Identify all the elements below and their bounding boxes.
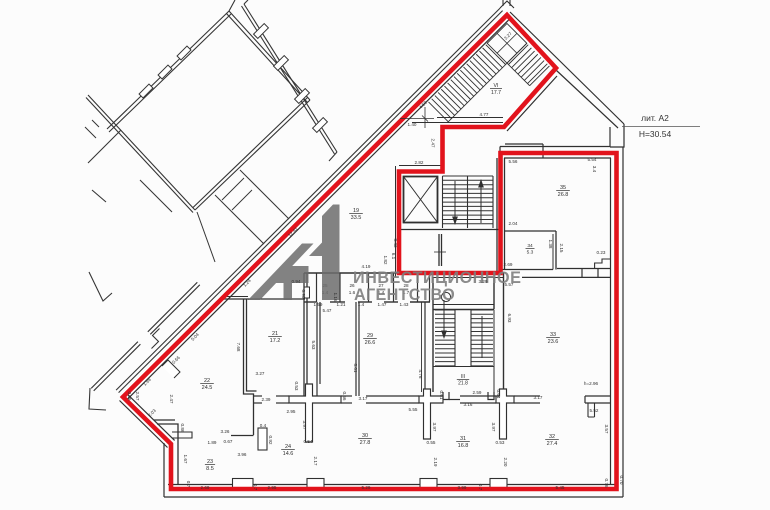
svg-text:2.39: 2.39 [262, 397, 271, 402]
svg-text:5.63: 5.63 [311, 341, 316, 350]
svg-text:33.5: 33.5 [351, 215, 362, 221]
svg-text:2.19: 2.19 [433, 458, 438, 467]
svg-text:4.19: 4.19 [362, 264, 371, 269]
svg-text:1.4: 1.4 [358, 302, 365, 307]
svg-text:26.6: 26.6 [365, 340, 376, 346]
svg-text:17.2: 17.2 [270, 338, 281, 344]
svg-text:1.21: 1.21 [337, 302, 346, 307]
svg-text:0.86: 0.86 [180, 424, 185, 433]
svg-text:29: 29 [367, 333, 373, 339]
svg-text:1.67: 1.67 [183, 455, 188, 464]
svg-text:0.76: 0.76 [604, 479, 609, 488]
svg-text:33: 33 [550, 332, 556, 338]
svg-text:VI: VI [494, 83, 499, 89]
svg-text:31: 31 [460, 436, 466, 442]
svg-text:лит. А2: лит. А2 [641, 113, 669, 123]
svg-text:1.43: 1.43 [400, 302, 409, 307]
svg-text:23.6: 23.6 [548, 339, 559, 345]
svg-text:0.64: 0.64 [496, 390, 501, 399]
svg-text:1.16: 1.16 [333, 293, 338, 302]
svg-text:2.47: 2.47 [169, 395, 174, 404]
svg-text:7.68: 7.68 [236, 343, 241, 352]
svg-text:0.53: 0.53 [294, 382, 299, 391]
svg-text:24: 24 [285, 444, 291, 450]
svg-text:5.45: 5.45 [556, 485, 565, 490]
svg-text:Н=30.54: Н=30.54 [639, 129, 672, 139]
svg-text:1.38: 1.38 [548, 240, 553, 249]
svg-text:2.82: 2.82 [415, 160, 424, 165]
svg-text:0.67: 0.67 [224, 439, 233, 444]
svg-text:22: 22 [204, 378, 210, 384]
svg-text:1.59: 1.59 [314, 302, 323, 307]
svg-text:5.55: 5.55 [409, 407, 418, 412]
svg-text:2.69: 2.69 [201, 485, 210, 490]
svg-text:21.8: 21.8 [458, 381, 468, 387]
svg-text:0.54: 0.54 [304, 439, 313, 444]
svg-text:5.3: 5.3 [527, 249, 534, 255]
svg-text:3.97: 3.97 [432, 423, 437, 432]
svg-text:1.89: 1.89 [208, 440, 217, 445]
svg-text:1.47: 1.47 [378, 302, 387, 307]
svg-text:27.4: 27.4 [547, 441, 558, 447]
svg-text:14.6: 14.6 [283, 451, 294, 457]
svg-text:3.57: 3.57 [604, 425, 609, 434]
svg-text:0.7: 0.7 [186, 481, 191, 488]
svg-text:0.65: 0.65 [127, 392, 132, 401]
svg-text:2.59: 2.59 [473, 390, 482, 395]
svg-text:23: 23 [207, 459, 213, 465]
svg-text:5.52: 5.52 [590, 408, 599, 413]
svg-text:21: 21 [272, 331, 278, 337]
svg-text:34: 34 [527, 243, 533, 249]
svg-text:3.16: 3.16 [464, 402, 473, 407]
svg-text:19: 19 [353, 208, 359, 214]
svg-text:32: 32 [549, 434, 555, 440]
svg-text:1.82: 1.82 [383, 256, 388, 265]
svg-text:4.77: 4.77 [480, 112, 489, 117]
svg-text:0.53: 0.53 [496, 440, 505, 445]
svg-text:0.61: 0.61 [439, 391, 444, 400]
svg-text:0.90: 0.90 [301, 290, 306, 299]
svg-text:8.5: 8.5 [206, 466, 214, 472]
svg-text:3.97: 3.97 [491, 423, 496, 432]
svg-text:3.29: 3.29 [479, 279, 488, 284]
svg-text:27.8: 27.8 [360, 440, 371, 446]
svg-text:3.96: 3.96 [238, 452, 247, 457]
svg-text:6.1: 6.1 [391, 253, 396, 260]
svg-text:5.29: 5.29 [362, 485, 371, 490]
svg-text:2.69: 2.69 [504, 262, 513, 267]
svg-text:5.47: 5.47 [323, 308, 332, 313]
svg-text:III: III [461, 374, 465, 380]
svg-text:6.93: 6.93 [507, 314, 512, 323]
svg-text:8.01: 8.01 [353, 364, 358, 373]
svg-text:26.8: 26.8 [558, 192, 569, 198]
svg-text:2.04: 2.04 [509, 221, 518, 226]
svg-text:0.70: 0.70 [619, 476, 624, 485]
svg-text:0.66: 0.66 [342, 392, 347, 401]
svg-text:30: 30 [362, 433, 368, 439]
svg-text:3.97: 3.97 [302, 421, 307, 430]
svg-text:2.95: 2.95 [268, 485, 277, 490]
svg-text:2.17: 2.17 [313, 457, 318, 466]
svg-text:3.26: 3.26 [221, 429, 230, 434]
svg-text:0.7: 0.7 [253, 484, 258, 491]
svg-text:0.94: 0.94 [292, 279, 301, 284]
svg-text:35: 35 [560, 185, 566, 191]
svg-text:8.43: 8.43 [393, 239, 398, 248]
svg-text:16.8: 16.8 [458, 443, 469, 449]
svg-text:2.15: 2.15 [559, 244, 564, 253]
svg-text:24.5: 24.5 [202, 385, 213, 391]
svg-text:3.27: 3.27 [256, 371, 265, 376]
svg-text:0.7: 0.7 [478, 484, 483, 491]
svg-text:3.17: 3.17 [359, 396, 368, 401]
svg-text:4.76: 4.76 [418, 370, 423, 379]
svg-text:3.4: 3.4 [592, 166, 597, 173]
svg-text:2.95: 2.95 [287, 409, 296, 414]
svg-text:3.99: 3.99 [458, 485, 467, 490]
svg-text:3.17: 3.17 [534, 395, 543, 400]
svg-text:0.23: 0.23 [597, 250, 606, 255]
svg-text:2.20: 2.20 [503, 458, 508, 467]
svg-text:5.57: 5.57 [505, 282, 514, 287]
svg-text:5.54: 5.54 [588, 157, 597, 162]
svg-text:2.57: 2.57 [135, 392, 140, 401]
svg-text:0.92: 0.92 [268, 436, 273, 445]
svg-text:2.47: 2.47 [431, 139, 436, 148]
svg-text:1.40: 1.40 [408, 122, 417, 127]
svg-text:0.4: 0.4 [260, 423, 267, 428]
svg-text:ИНВЕСТИЦИОННОЕ: ИНВЕСТИЦИОННОЕ [353, 269, 521, 287]
svg-text:5.56: 5.56 [509, 159, 518, 164]
svg-text:h=2.96: h=2.96 [584, 381, 599, 386]
svg-text:17.7: 17.7 [491, 90, 501, 96]
svg-text:0.55: 0.55 [427, 440, 436, 445]
